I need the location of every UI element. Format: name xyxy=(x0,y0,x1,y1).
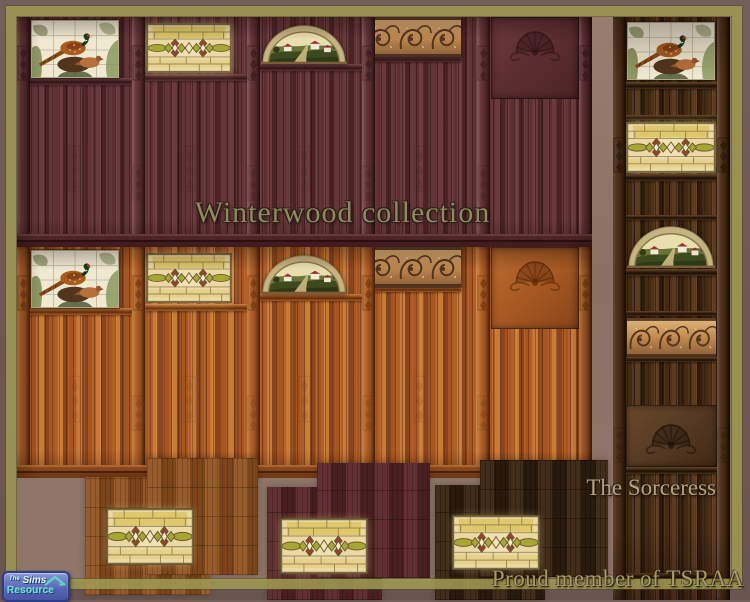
stained-glass-window xyxy=(627,123,715,172)
carved-stile xyxy=(247,247,260,478)
carved-stile xyxy=(477,247,490,478)
stained-glass-rug xyxy=(453,516,539,569)
shell-crest-carving xyxy=(628,413,714,455)
wall-rail xyxy=(145,304,247,311)
carved-acanthus-border xyxy=(627,318,716,357)
wall-rail xyxy=(626,357,717,362)
carved-stile xyxy=(17,17,30,247)
carved-stile xyxy=(477,17,490,247)
shell-crest-carving xyxy=(492,250,578,292)
roof-icon xyxy=(44,575,66,586)
wall-rail xyxy=(626,82,717,89)
logo-resource-text: Resource xyxy=(7,586,54,596)
wall-rail xyxy=(30,78,132,85)
carved-acanthus-border xyxy=(365,247,461,287)
carved-crest-panel xyxy=(626,405,717,467)
stained-glass-window xyxy=(147,24,231,72)
carved-stile xyxy=(717,17,730,600)
wall-strip-walnut xyxy=(613,17,730,600)
carved-crest-panel xyxy=(491,247,579,329)
wall-rail xyxy=(626,311,717,316)
wall-row-oak xyxy=(17,247,592,478)
shell-crest-carving xyxy=(492,20,578,62)
pheasant-mural-tile xyxy=(31,20,119,78)
wall-rail xyxy=(260,294,364,301)
stained-glass-rug xyxy=(107,509,193,564)
stained-glass-window xyxy=(147,254,231,302)
carved-stile xyxy=(613,17,626,600)
carved-stile xyxy=(579,247,592,478)
wall-rail xyxy=(626,573,717,580)
carved-stile xyxy=(132,17,145,247)
carved-stile xyxy=(17,247,30,478)
wall-rail xyxy=(30,308,132,315)
sims-resource-logo[interactable]: The Sims Resource xyxy=(2,571,70,602)
arched-landscape-window xyxy=(261,252,347,294)
carved-crest-panel xyxy=(491,17,579,99)
pheasant-mural-tile xyxy=(627,22,715,80)
carved-stile xyxy=(132,247,145,478)
wall-rail xyxy=(626,215,717,220)
walnut-planks xyxy=(613,17,730,600)
wall-rail xyxy=(145,74,247,81)
wall-row-mahogany xyxy=(17,17,592,247)
carved-acanthus-border xyxy=(365,17,461,57)
carved-stile xyxy=(579,17,592,247)
pheasant-mural-tile xyxy=(31,250,119,308)
wall-rail xyxy=(626,174,717,181)
arched-landscape-window xyxy=(627,223,715,268)
wall-rail xyxy=(365,57,461,62)
wall-rail xyxy=(260,64,364,71)
arched-landscape-window xyxy=(261,22,347,64)
wall-rail xyxy=(365,287,461,292)
carved-stile xyxy=(362,17,375,247)
wall-rail xyxy=(626,115,717,120)
wall-rail xyxy=(626,467,717,474)
carved-stile xyxy=(362,247,375,478)
baseboard xyxy=(17,234,592,247)
carved-stile xyxy=(247,17,260,247)
stained-glass-rug xyxy=(281,519,367,573)
wall-rail xyxy=(626,269,717,276)
